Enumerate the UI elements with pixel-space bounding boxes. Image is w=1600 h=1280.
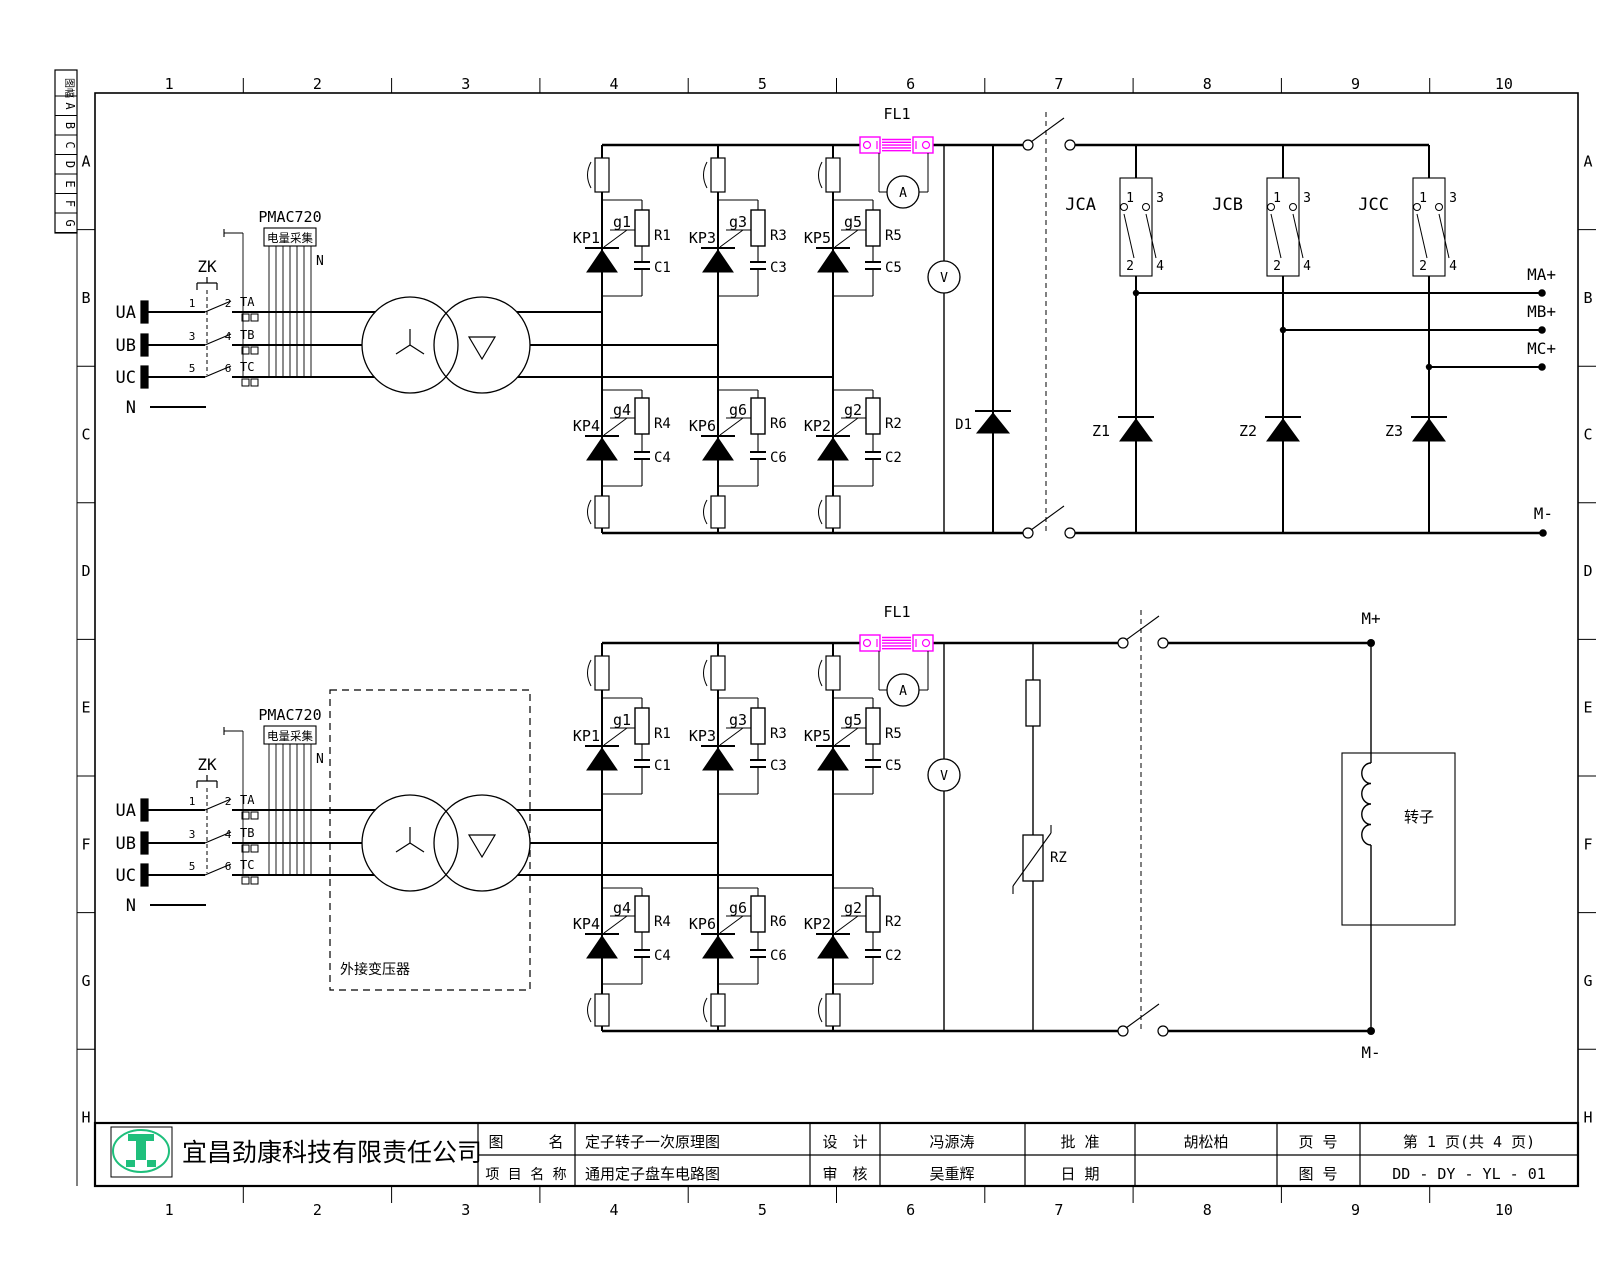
contact-number: 2 <box>225 297 232 310</box>
gate-label: g4 <box>613 899 631 917</box>
field-value: 通用定子盘车电路图 <box>585 1165 720 1183</box>
gate-label: g3 <box>729 711 747 729</box>
gate-label: g6 <box>729 401 747 419</box>
grid-row-label-right: C <box>1583 426 1592 444</box>
contactor-label: JCB <box>1212 195 1243 215</box>
phase-input-label: UC <box>116 368 136 388</box>
output-terminal <box>1538 289 1546 297</box>
company-logo <box>126 1160 135 1167</box>
leg-fuse <box>595 994 609 1026</box>
contactor-terminal: 4 <box>1156 259 1164 274</box>
grid-row-label-right: F <box>1583 835 1592 853</box>
contactor-terminal: 4 <box>1449 259 1457 274</box>
thyristor-label: KP1 <box>573 229 600 247</box>
snubber-resistor <box>866 708 880 744</box>
capacitor-label: C2 <box>885 948 902 964</box>
thyristor-label: KP1 <box>573 727 600 745</box>
field-label: 图 名 <box>488 1133 563 1151</box>
output-label: MC+ <box>1527 339 1556 358</box>
grid-col-label-top: 2 <box>313 75 322 93</box>
contactor-label: JCA <box>1065 195 1096 215</box>
field-value: 胡松柏 <box>1183 1133 1228 1151</box>
snubber-resistor <box>751 210 765 246</box>
snubber-resistor <box>866 210 880 246</box>
gate-label: g6 <box>729 899 747 917</box>
grid-col-label-bottom: 4 <box>610 1201 619 1219</box>
capacitor-label: C3 <box>770 758 787 774</box>
snubber-resistor <box>751 398 765 434</box>
grid-row-label-left: C <box>81 426 90 444</box>
gate-label: g1 <box>613 711 631 729</box>
thyristor-label: KP4 <box>573 417 600 435</box>
field-label: 设 计 <box>822 1133 867 1151</box>
field-label: 页 号 <box>1298 1133 1337 1151</box>
grid-row-label-right: E <box>1583 699 1592 717</box>
thyristor-label: KP3 <box>689 727 716 745</box>
capacitor-label: C3 <box>770 260 787 276</box>
leg-fuse <box>826 994 840 1026</box>
grid-row-label-left: A <box>81 152 90 170</box>
input-terminal-bar <box>141 832 148 854</box>
capacitor-label: C1 <box>654 260 671 276</box>
pmac-model-label: PMAC720 <box>258 706 321 724</box>
input-terminal-bar <box>141 864 148 886</box>
field-value: 定子转子一次原理图 <box>585 1133 720 1151</box>
thyristor-label: KP5 <box>804 727 831 745</box>
contactor-hook <box>1290 204 1297 211</box>
grid-col-label-bottom: 9 <box>1351 1201 1360 1219</box>
snubber-resistor <box>635 708 649 744</box>
capacitor-label: C6 <box>770 948 787 964</box>
grid-col-label-top: 5 <box>758 75 767 93</box>
grid-col-label-bottom: 5 <box>758 1201 767 1219</box>
capacitor-label: C6 <box>770 450 787 466</box>
zone-strip-letter: F <box>63 200 77 207</box>
neutral-label: N <box>126 398 136 418</box>
phase-input-label: UA <box>116 303 136 323</box>
snubber-resistor <box>866 896 880 932</box>
thyristor-label: KP6 <box>689 915 716 933</box>
leg-fuse <box>711 994 725 1026</box>
leg-fuse <box>595 496 609 528</box>
snubber-resistor <box>635 210 649 246</box>
leg-fuse <box>826 158 840 192</box>
rotor-box-label: 转子 <box>1404 808 1434 826</box>
capacitor-label: C5 <box>885 260 902 276</box>
resistor-label: R2 <box>885 416 902 432</box>
field-label: 日 期 <box>1060 1165 1099 1183</box>
gate-label: g3 <box>729 213 747 231</box>
grid-row-label-right: A <box>1583 152 1592 170</box>
contactor-terminal: 4 <box>1303 259 1311 274</box>
resistor-label: R3 <box>770 726 787 742</box>
gate-label: g5 <box>844 711 862 729</box>
contactor-terminal: 2 <box>1419 259 1427 274</box>
ct-label: TB <box>240 328 254 342</box>
contactor-terminal: 2 <box>1126 259 1134 274</box>
thyristor-label: KP4 <box>573 915 600 933</box>
resistor-label: R5 <box>885 726 902 742</box>
phase-input-label: UC <box>116 866 136 886</box>
snubber-resistor <box>635 896 649 932</box>
thyristor-label: KP3 <box>689 229 716 247</box>
schematic-canvas: 1122334455667788991010AABBCCDDEEFFGGHH图幅… <box>0 0 1600 1280</box>
contact-number: 6 <box>225 362 232 375</box>
gate-label: g2 <box>844 899 862 917</box>
gate-label: g2 <box>844 401 862 419</box>
field-label: 项 目 名 称 <box>485 1167 566 1183</box>
contact-number: 4 <box>225 828 232 841</box>
grid-col-label-top: 9 <box>1351 75 1360 93</box>
output-terminal <box>1539 529 1547 537</box>
output-label: MB+ <box>1527 302 1556 321</box>
contactor-terminal: 1 <box>1126 191 1134 206</box>
capacitor-label: C1 <box>654 758 671 774</box>
output-label: MA+ <box>1527 265 1556 284</box>
zone-strip-letter: G <box>63 219 77 226</box>
grid-col-label-bottom: 3 <box>461 1201 470 1219</box>
contactor-terminal: 3 <box>1449 191 1457 206</box>
shunt-terminal <box>864 142 871 149</box>
ct-label: TA <box>240 793 255 807</box>
grid-row-label-left: E <box>81 699 90 717</box>
cad-sheet: 1122334455667788991010AABBCCDDEEFFGGHH图幅… <box>0 0 1600 1280</box>
resistor-label: R5 <box>885 228 902 244</box>
input-terminal-bar <box>141 799 148 821</box>
contactor-hook <box>1436 204 1443 211</box>
contactor-terminal: 1 <box>1419 191 1427 206</box>
contact-number: 1 <box>189 297 196 310</box>
resistor-label: R4 <box>654 914 671 930</box>
contact-number: 4 <box>225 330 232 343</box>
knife-contact <box>1158 638 1168 648</box>
resistor-label: R1 <box>654 228 671 244</box>
branch-fuse <box>1026 680 1040 726</box>
grid-col-label-top: 10 <box>1495 75 1513 93</box>
grid-col-label-bottom: 10 <box>1495 1201 1513 1219</box>
company-name: 宜昌劲康科技有限责任公司 <box>182 1138 482 1167</box>
ammeter-letter: A <box>899 684 907 699</box>
leg-fuse <box>826 496 840 528</box>
leg-fuse <box>826 656 840 690</box>
capacitor-label: C4 <box>654 450 671 466</box>
shunt-terminal <box>864 640 871 647</box>
grid-row-label-left: H <box>81 1109 90 1127</box>
contact-number: 5 <box>189 362 196 375</box>
shunt-label: FL1 <box>883 603 910 621</box>
field-label: 批 准 <box>1060 1133 1099 1151</box>
ammeter-letter: A <box>899 186 907 201</box>
grid-col-label-bottom: 1 <box>165 1201 174 1219</box>
grid-row-label-left: B <box>81 289 90 307</box>
grid-col-label-bottom: 7 <box>1054 1201 1063 1219</box>
pmac-caption: 电量采集 <box>267 729 313 743</box>
resistor-label: R6 <box>770 416 787 432</box>
zone-strip-letter: C <box>63 141 77 148</box>
fw-diode-label: Z2 <box>1239 422 1257 440</box>
capacitor-label: C2 <box>885 450 902 466</box>
resistor-label: R4 <box>654 416 671 432</box>
ct-label: TA <box>240 295 255 309</box>
diode-label: D1 <box>955 417 972 433</box>
field-value: 第 1 页(共 4 页) <box>1403 1133 1535 1151</box>
thyristor-label: KP6 <box>689 417 716 435</box>
contactor-terminal: 1 <box>1273 191 1281 206</box>
capacitor-label: C5 <box>885 758 902 774</box>
phase-input-label: UB <box>116 336 136 356</box>
field-value: DD - DY - YL - 01 <box>1392 1165 1546 1183</box>
neutral-label: N <box>126 896 136 916</box>
grid-row-label-left: G <box>81 972 90 990</box>
knife-contact <box>1065 528 1075 538</box>
grid-row-label-left: F <box>81 835 90 853</box>
voltmeter-letter: V <box>940 271 948 286</box>
ext-transformer-label: 外接变压器 <box>340 961 410 978</box>
leg-fuse <box>595 158 609 192</box>
zone-strip-letter: B <box>63 122 77 129</box>
leg-fuse <box>711 656 725 690</box>
contactor-terminal: 2 <box>1273 259 1281 274</box>
grid-row-label-right: G <box>1583 972 1592 990</box>
field-value: 吴重辉 <box>929 1165 974 1183</box>
leg-fuse <box>595 656 609 690</box>
grid-row-label-right: B <box>1583 289 1592 307</box>
pmac-neutral-label: N <box>316 254 324 269</box>
shunt-terminal <box>923 142 930 149</box>
grid-col-label-top: 7 <box>1054 75 1063 93</box>
zone-strip-header: 图幅 <box>63 78 76 98</box>
shunt-label: FL1 <box>883 105 910 123</box>
contact-number: 5 <box>189 860 196 873</box>
snubber-resistor <box>751 708 765 744</box>
output-label: M- <box>1534 504 1553 523</box>
contactor-terminal: 3 <box>1156 191 1164 206</box>
gate-label: g1 <box>613 213 631 231</box>
field-label: 审 核 <box>822 1165 867 1183</box>
resistor-label: R2 <box>885 914 902 930</box>
ct-label: TC <box>240 360 254 374</box>
gate-label: g4 <box>613 401 631 419</box>
resistor-label: R6 <box>770 914 787 930</box>
contact-number: 3 <box>189 828 196 841</box>
grid-col-label-bottom: 6 <box>906 1201 915 1219</box>
ct-label: TB <box>240 826 254 840</box>
resistor-label: R1 <box>654 726 671 742</box>
output-terminal <box>1538 363 1546 371</box>
zone-strip-letter: A <box>63 102 77 110</box>
fw-diode-label: Z3 <box>1385 422 1403 440</box>
pmac-caption: 电量采集 <box>267 231 313 245</box>
grid-col-label-top: 8 <box>1203 75 1212 93</box>
thyristor-label: KP2 <box>804 915 831 933</box>
input-terminal-bar <box>141 301 148 323</box>
output-label: M+ <box>1361 609 1380 628</box>
grid-row-label-right: D <box>1583 562 1592 580</box>
pmac-neutral-label: N <box>316 752 324 767</box>
output-terminal <box>1538 326 1546 334</box>
contactor-terminal: 3 <box>1303 191 1311 206</box>
snubber-resistor <box>751 896 765 932</box>
grid-col-label-top: 3 <box>461 75 470 93</box>
grid-col-label-bottom: 8 <box>1203 1201 1212 1219</box>
phase-input-label: UB <box>116 834 136 854</box>
field-label: 图 号 <box>1298 1165 1337 1183</box>
resistor-label: R3 <box>770 228 787 244</box>
sheet-background <box>0 0 1600 1280</box>
ct-label: TC <box>240 858 254 872</box>
grid-row-label-left: D <box>81 562 90 580</box>
contact-number: 1 <box>189 795 196 808</box>
voltmeter-letter: V <box>940 769 948 784</box>
leg-fuse <box>711 158 725 192</box>
contactor-label: JCC <box>1358 195 1389 215</box>
snubber-resistor <box>635 398 649 434</box>
grid-col-label-bottom: 2 <box>313 1201 322 1219</box>
input-terminal-bar <box>141 366 148 388</box>
contactor-hook <box>1143 204 1150 211</box>
grid-col-label-top: 1 <box>165 75 174 93</box>
input-terminal-bar <box>141 334 148 356</box>
fw-diode-label: Z1 <box>1092 422 1110 440</box>
gate-label: g5 <box>844 213 862 231</box>
grid-col-label-top: 4 <box>610 75 619 93</box>
contact-number: 2 <box>225 795 232 808</box>
leg-fuse <box>711 496 725 528</box>
breaker-label: ZK <box>197 755 217 774</box>
phase-input-label: UA <box>116 801 136 821</box>
capacitor-label: C4 <box>654 948 671 964</box>
contact-number: 3 <box>189 330 196 343</box>
pmac-model-label: PMAC720 <box>258 208 321 226</box>
knife-contact <box>1065 140 1075 150</box>
zone-strip-letter: E <box>63 180 77 187</box>
company-logo <box>136 1141 146 1160</box>
breaker-label: ZK <box>197 257 217 276</box>
output-terminal <box>1367 1027 1375 1035</box>
contact-number: 6 <box>225 860 232 873</box>
company-logo <box>147 1160 156 1167</box>
field-value: 冯源涛 <box>929 1133 974 1151</box>
grid-col-label-top: 6 <box>906 75 915 93</box>
grid-row-label-right: H <box>1583 1109 1592 1127</box>
zone-strip-letter: D <box>63 161 77 168</box>
thyristor-label: KP5 <box>804 229 831 247</box>
thyristor-label: KP2 <box>804 417 831 435</box>
knife-contact <box>1158 1026 1168 1036</box>
varistor-label: RZ <box>1050 850 1067 866</box>
snubber-resistor <box>866 398 880 434</box>
shunt-terminal <box>923 640 930 647</box>
company-logo <box>128 1134 154 1141</box>
output-label: M- <box>1361 1043 1380 1062</box>
